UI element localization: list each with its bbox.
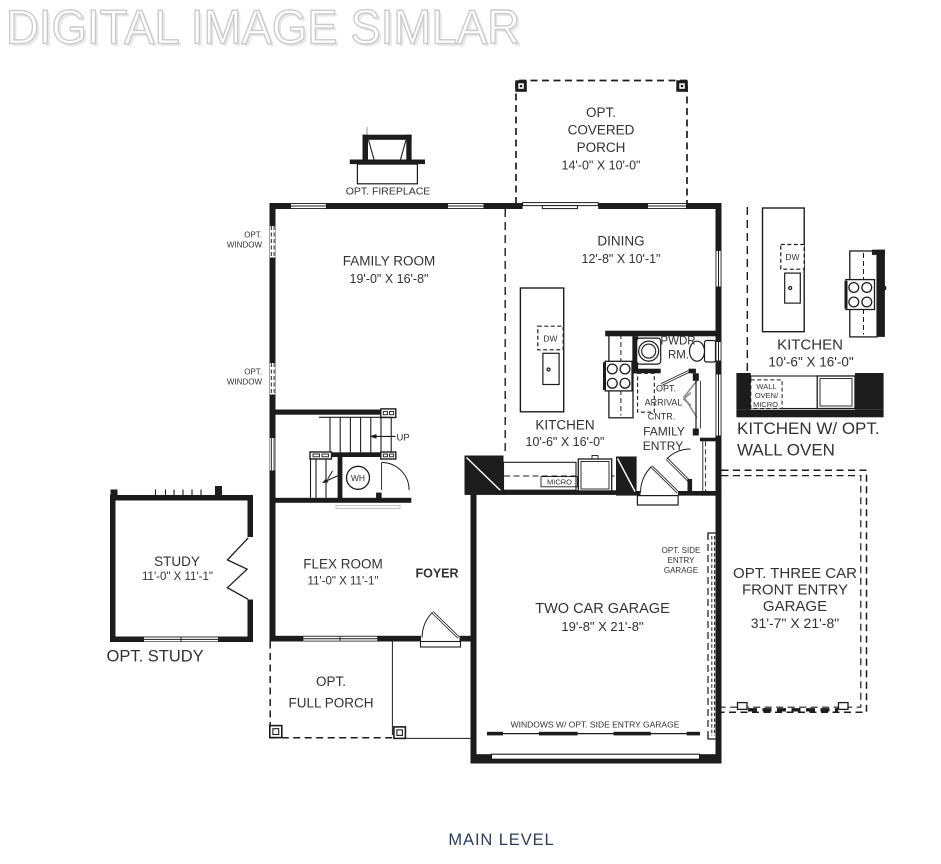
svg-text:OVEN/: OVEN/ bbox=[755, 391, 779, 400]
svg-text:ENTRY: ENTRY bbox=[668, 556, 696, 565]
svg-text:OPT.: OPT. bbox=[244, 231, 262, 240]
svg-text:OPT.: OPT. bbox=[656, 384, 676, 394]
svg-text:KITCHEN: KITCHEN bbox=[535, 418, 594, 433]
svg-text:FLEX ROOM: FLEX ROOM bbox=[303, 557, 383, 572]
svg-text:14'-0" X 10'-0": 14'-0" X 10'-0" bbox=[562, 159, 641, 173]
svg-text:OPT.: OPT. bbox=[586, 105, 616, 120]
svg-text:FAMILY ROOM: FAMILY ROOM bbox=[343, 254, 436, 269]
svg-text:31'-7" X 21'-8": 31'-7" X 21'-8" bbox=[751, 615, 839, 631]
svg-text:WINDOW: WINDOW bbox=[227, 241, 263, 250]
svg-text:WALL: WALL bbox=[756, 382, 776, 391]
svg-text:MICRO.: MICRO. bbox=[753, 400, 780, 409]
svg-text:FAMILY: FAMILY bbox=[643, 425, 685, 439]
svg-text:OPT. SIDE: OPT. SIDE bbox=[662, 546, 701, 555]
svg-text:DINING: DINING bbox=[597, 234, 644, 249]
svg-text:OPT. STUDY: OPT. STUDY bbox=[107, 648, 204, 666]
svg-text:WINDOWS W/ OPT. SIDE ENTRY GAR: WINDOWS W/ OPT. SIDE ENTRY GARAGE bbox=[511, 720, 680, 730]
svg-text:DIGITAL IMAGE SIMLAR: DIGITAL IMAGE SIMLAR bbox=[6, 2, 520, 55]
svg-text:FRONT ENTRY: FRONT ENTRY bbox=[742, 582, 848, 599]
svg-text:CNTR.: CNTR. bbox=[648, 412, 676, 422]
svg-text:OPT.: OPT. bbox=[316, 674, 346, 689]
svg-text:OPT. THREE CAR: OPT. THREE CAR bbox=[733, 565, 857, 582]
svg-text:11'-0" X 11'-1": 11'-0" X 11'-1" bbox=[142, 571, 213, 583]
svg-text:WH: WH bbox=[351, 473, 365, 483]
svg-text:11'-0" X 11'-1": 11'-0" X 11'-1" bbox=[308, 576, 379, 588]
svg-text:DW: DW bbox=[543, 334, 557, 344]
svg-text:STUDY: STUDY bbox=[154, 554, 200, 569]
svg-text:FOYER: FOYER bbox=[415, 567, 458, 581]
svg-text:OPT.: OPT. bbox=[244, 368, 262, 377]
svg-text:TWO CAR GARAGE: TWO CAR GARAGE bbox=[535, 601, 670, 617]
svg-text:MAIN LEVEL: MAIN LEVEL bbox=[448, 831, 554, 849]
svg-text:COVERED: COVERED bbox=[568, 123, 635, 138]
svg-text:KITCHEN: KITCHEN bbox=[777, 337, 843, 354]
svg-text:19'-0" X 16'-8": 19'-0" X 16'-8" bbox=[350, 272, 429, 286]
svg-text:MICRO: MICRO bbox=[547, 477, 572, 486]
svg-text:10'-6" X 16'-0": 10'-6" X 16'-0" bbox=[526, 435, 605, 449]
svg-text:UP: UP bbox=[397, 433, 410, 444]
svg-text:12'-8" X 10'-1": 12'-8" X 10'-1" bbox=[582, 252, 661, 266]
svg-text:GARAGE: GARAGE bbox=[664, 566, 698, 575]
svg-text:RM.: RM. bbox=[668, 350, 689, 362]
svg-text:10'-6" X 16'-0": 10'-6" X 16'-0" bbox=[768, 355, 853, 370]
svg-text:OPT. FIREPLACE: OPT. FIREPLACE bbox=[346, 186, 431, 198]
svg-text:FULL PORCH: FULL PORCH bbox=[288, 696, 373, 711]
svg-text:GARAGE: GARAGE bbox=[763, 598, 827, 615]
svg-text:PWDR: PWDR bbox=[660, 336, 695, 348]
svg-text:PORCH: PORCH bbox=[577, 140, 626, 155]
svg-text:WINDOW: WINDOW bbox=[227, 378, 263, 387]
svg-text:19'-8" X 21'-8": 19'-8" X 21'-8" bbox=[561, 619, 644, 634]
svg-text:KITCHEN W/ OPT.: KITCHEN W/ OPT. bbox=[737, 419, 880, 438]
svg-text:ARRIVAL: ARRIVAL bbox=[645, 398, 683, 408]
svg-text:ENTRY: ENTRY bbox=[643, 439, 683, 453]
svg-text:DW: DW bbox=[785, 252, 799, 262]
svg-text:WALL OVEN: WALL OVEN bbox=[737, 441, 835, 460]
